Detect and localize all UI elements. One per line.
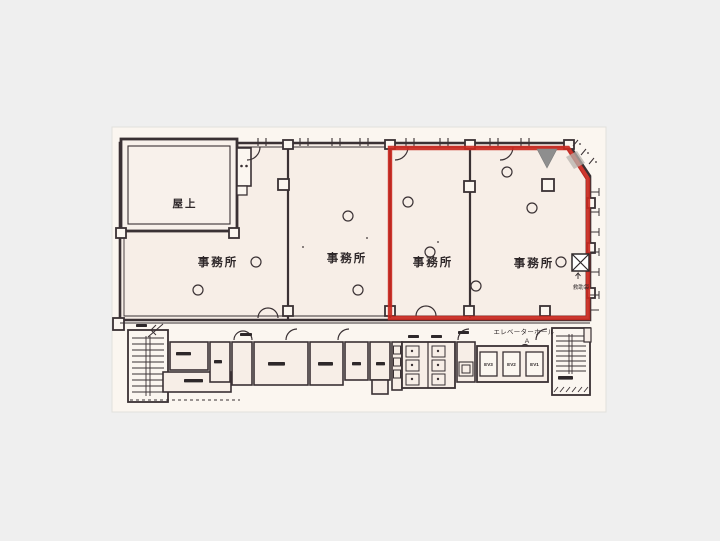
elevator-label-1: EV3	[484, 362, 493, 367]
office-label-1: 事務所	[198, 255, 239, 269]
elevator-label-2: EV2	[507, 362, 516, 367]
roof-label: 屋上	[173, 197, 198, 210]
left-staircase	[128, 324, 168, 402]
pipe-shaft	[457, 342, 475, 382]
rooftop-block	[116, 139, 251, 238]
toilet-block	[402, 342, 455, 388]
shaft-boxes	[394, 346, 401, 378]
office-label-4: 事務所	[514, 256, 555, 270]
elevator-hall-label: エレベーターホール	[493, 327, 554, 336]
office-label-2: 事務所	[327, 251, 368, 265]
elevator-hall-letter: A	[525, 338, 530, 345]
office-label-3: 事務所	[413, 255, 454, 269]
floorplan-image: 屋上 事務所 事務所 事務所 事務所 エレベーターホール A EV3 EV2 E…	[0, 0, 720, 541]
rescue-bag-label: 救助袋	[573, 283, 590, 291]
elevator-label-3: EV1	[530, 362, 539, 367]
right-staircase	[552, 328, 591, 395]
